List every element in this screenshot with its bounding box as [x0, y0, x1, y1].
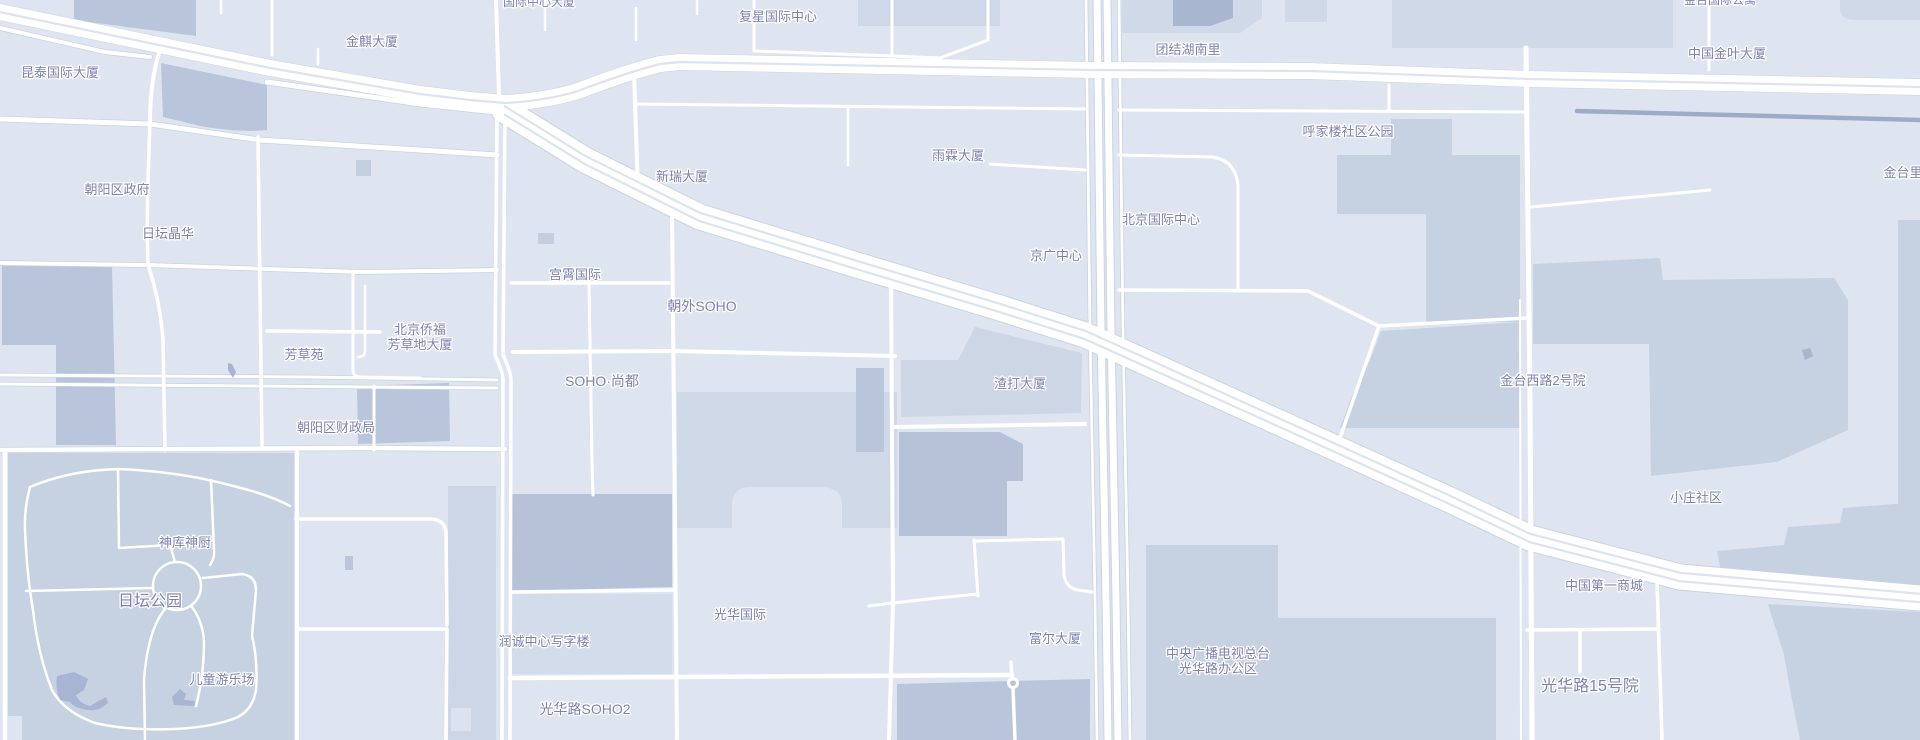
svg-text:宫霄国际: 宫霄国际	[549, 267, 601, 282]
svg-text:雨霖大厦: 雨霖大厦	[932, 148, 984, 163]
svg-text:渣打大厦: 渣打大厦	[994, 376, 1046, 391]
svg-text:团结湖南里: 团结湖南里	[1155, 42, 1220, 57]
svg-text:光华路15号院: 光华路15号院	[1541, 677, 1639, 695]
svg-text:日坛晶华: 日坛晶华	[142, 226, 194, 241]
svg-text:北京国际中心: 北京国际中心	[1122, 212, 1200, 227]
svg-text:润诚中心写字楼: 润诚中心写字楼	[498, 634, 589, 649]
svg-text:朝阳区财政局: 朝阳区财政局	[297, 420, 375, 435]
svg-text:光华路办公区: 光华路办公区	[1179, 661, 1257, 676]
svg-text:金台里: 金台里	[1883, 165, 1920, 180]
svg-text:日坛公园: 日坛公园	[118, 592, 182, 610]
svg-text:中央广播电视总台: 中央广播电视总台	[1166, 646, 1270, 661]
svg-text:中国金叶大厦: 中国金叶大厦	[1688, 46, 1766, 61]
svg-text:芳草地大厦: 芳草地大厦	[387, 337, 452, 352]
svg-text:朝外SOHO: 朝外SOHO	[667, 298, 736, 314]
svg-text:中国第一商城: 中国第一商城	[1565, 578, 1643, 593]
svg-text:金台西路2号院: 金台西路2号院	[1500, 373, 1585, 388]
svg-text:光华国际: 光华国际	[714, 607, 766, 622]
svg-text:神库神厨: 神库神厨	[159, 535, 211, 550]
svg-text:新瑞大厦: 新瑞大厦	[656, 169, 708, 184]
svg-text:金台国际公寓: 金台国际公寓	[1684, 0, 1756, 7]
svg-text:京广中心: 京广中心	[1030, 248, 1082, 263]
svg-text:金麒大厦: 金麒大厦	[346, 34, 398, 49]
svg-text:芳草苑: 芳草苑	[284, 347, 323, 362]
svg-text:光华路SOHO2: 光华路SOHO2	[539, 701, 630, 717]
svg-text:朝阳区政府: 朝阳区政府	[84, 182, 149, 197]
svg-text:昆泰国际大厦: 昆泰国际大厦	[21, 65, 99, 80]
svg-text:北京侨福: 北京侨福	[394, 322, 446, 337]
svg-text:富尔大厦: 富尔大厦	[1029, 631, 1081, 646]
svg-text:儿童游乐场: 儿童游乐场	[189, 672, 254, 687]
svg-text:呼家楼社区公园: 呼家楼社区公园	[1302, 124, 1393, 139]
svg-text:复星国际中心: 复星国际中心	[739, 9, 817, 24]
svg-text:国际中心大厦: 国际中心大厦	[503, 0, 575, 9]
svg-text:SOHO·尚都: SOHO·尚都	[565, 373, 639, 389]
svg-text:小庄社区: 小庄社区	[1670, 490, 1722, 505]
